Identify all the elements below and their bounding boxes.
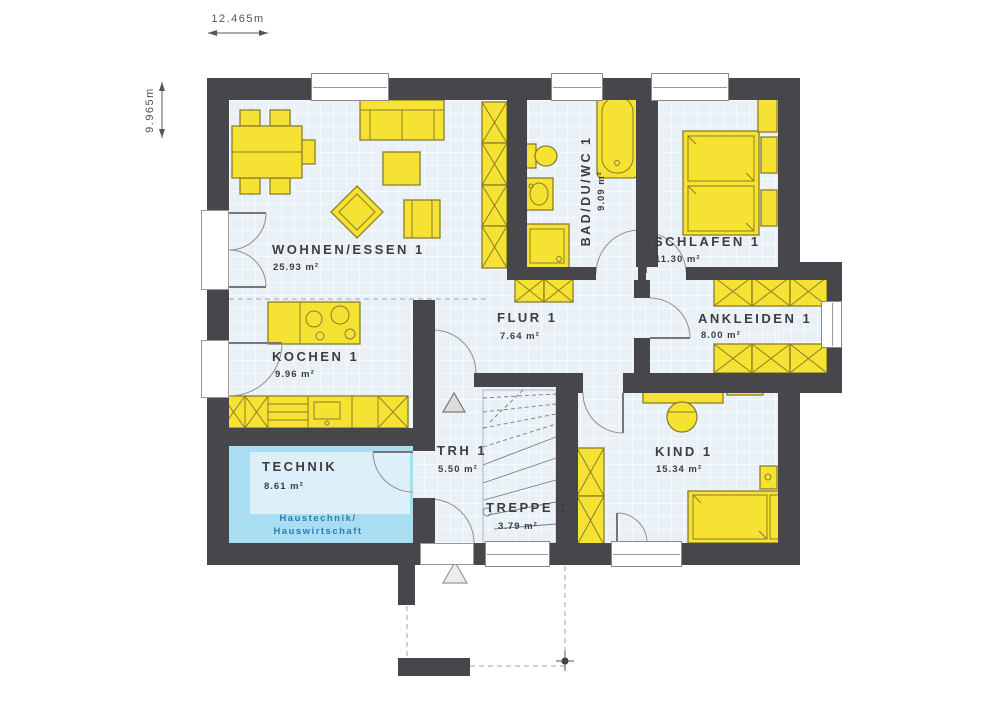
room-label-schlafen: SCHLAFEN 1 <box>654 234 761 249</box>
room-label-kochen: KOCHEN 1 <box>272 349 359 364</box>
wall-bad-jamb <box>638 267 646 280</box>
wall-kind-top-b <box>623 373 842 393</box>
window-wohnen <box>311 73 389 101</box>
dimension-height: 9.965m <box>144 87 156 133</box>
porch-wall-bottom <box>398 658 470 676</box>
room-area-schlafen: 11.30 m² <box>655 254 701 265</box>
room-area-kochen: 9.96 m² <box>275 369 315 380</box>
technik-note-line1: Haustechnik/ <box>248 512 388 525</box>
wall-flur-bottom-a <box>427 373 432 387</box>
room-label-technik: TECHNIK <box>262 459 337 474</box>
kitchen-door-opening <box>201 340 229 398</box>
wall-flur-ankleiden-a <box>634 280 650 298</box>
room-area-flur: 7.64 m² <box>500 331 540 342</box>
room-label-flur: FLUR 1 <box>497 310 558 325</box>
wall-left <box>207 78 229 565</box>
room-label-bad-wrap: BAD/DU/WC 1 9.09 m² <box>570 126 616 256</box>
wall-bad-bottom <box>507 267 596 280</box>
entrance-triangle <box>443 562 467 583</box>
room-label-treppe: TREPPE 1 <box>486 500 569 515</box>
room-label-wohnen: WOHNEN/ESSEN 1 <box>272 242 425 257</box>
wall-schlafen-bottom <box>686 267 842 280</box>
wall-right-upper <box>778 78 800 277</box>
french-door-opening <box>201 210 229 290</box>
room-label-kind: KIND 1 <box>655 444 713 459</box>
window-kind <box>611 541 682 567</box>
window-bad <box>551 73 603 101</box>
room-label-trh: TRH 1 <box>437 443 487 458</box>
room-area-bad: 9.09 m² <box>596 171 607 211</box>
wall-bad-left <box>507 100 527 280</box>
wall-flur-ankleiden-b <box>634 338 650 375</box>
room-label-bad: BAD/DU/WC 1 <box>579 136 593 247</box>
window-ankleiden <box>821 301 842 348</box>
room-label-ankleiden: ANKLEIDEN 1 <box>698 311 812 326</box>
dimension-width: 12.465m <box>205 13 271 25</box>
room-area-wohnen: 25.93 m² <box>273 262 319 273</box>
technik-note: Haustechnik/ Hauswirtschaft <box>248 512 388 538</box>
wall-technik-top <box>207 428 435 446</box>
window-schlafen <box>651 73 729 101</box>
entrance-door-opening <box>420 543 474 565</box>
room-area-trh: 5.50 m² <box>438 464 478 475</box>
room-area-ankleiden: 8.00 m² <box>701 330 741 341</box>
window-treppe <box>485 541 550 567</box>
dimension-height-wrap: 9.965m <box>124 82 176 138</box>
technik-note-line2: Hauswirtschaft <box>248 525 388 538</box>
wall-right-lower <box>778 373 800 565</box>
porch-outline <box>407 566 574 671</box>
room-area-treppe: 3.79 m² <box>498 521 538 532</box>
room-area-technik: 8.61 m² <box>264 481 304 492</box>
floor-plan: WOHNEN/ESSEN 1 25.93 m² KOCHEN 1 9.96 m²… <box>0 0 1000 707</box>
room-area-kind: 15.34 m² <box>656 464 702 475</box>
wall-treppe-kind <box>556 373 578 565</box>
porch-wall-stub <box>398 565 415 605</box>
